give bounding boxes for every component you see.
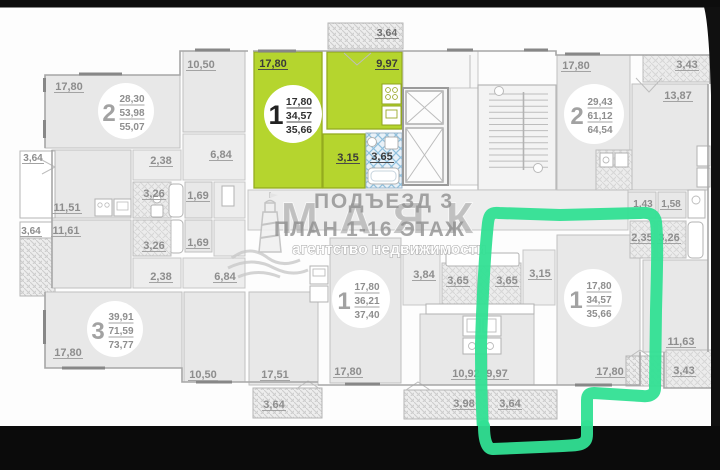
svg-text:10,50: 10,50 xyxy=(189,369,217,381)
svg-text:3,64: 3,64 xyxy=(377,27,398,39)
svg-text:9,97: 9,97 xyxy=(376,58,397,70)
svg-text:3,64: 3,64 xyxy=(23,153,43,164)
svg-text:ПЛАН 1-16 ЭТАЖ: ПЛАН 1-16 ЭТАЖ xyxy=(274,218,465,241)
svg-text:34,57: 34,57 xyxy=(586,295,611,306)
svg-text:34,57: 34,57 xyxy=(286,110,312,122)
svg-text:3,65: 3,65 xyxy=(371,151,392,163)
svg-text:11,61: 11,61 xyxy=(53,225,80,237)
svg-text:3,65: 3,65 xyxy=(496,275,517,287)
svg-text:3,64: 3,64 xyxy=(499,398,521,410)
svg-text:11,63: 11,63 xyxy=(668,336,695,348)
svg-text:17,51: 17,51 xyxy=(261,369,289,381)
svg-text:36,21: 36,21 xyxy=(354,296,379,307)
svg-text:37,40: 37,40 xyxy=(354,310,379,321)
svg-text:17,80: 17,80 xyxy=(562,60,590,72)
svg-text:3,15: 3,15 xyxy=(337,152,358,164)
svg-text:64,54: 64,54 xyxy=(587,125,612,136)
svg-text:29,43: 29,43 xyxy=(587,97,612,108)
svg-text:17,80: 17,80 xyxy=(596,366,624,378)
svg-text:17,80: 17,80 xyxy=(354,282,379,293)
svg-text:53,98: 53,98 xyxy=(119,108,144,119)
svg-text:1,69: 1,69 xyxy=(187,237,208,249)
svg-text:1,58: 1,58 xyxy=(661,199,681,210)
svg-text:17,80: 17,80 xyxy=(54,347,82,359)
svg-text:2,35: 2,35 xyxy=(631,232,652,244)
svg-text:агентство недвижимости: агентство недвижимости xyxy=(292,241,486,258)
svg-text:17,80: 17,80 xyxy=(259,58,287,70)
svg-text:3,84: 3,84 xyxy=(413,269,435,281)
svg-text:71,59: 71,59 xyxy=(108,326,133,337)
svg-text:3,98: 3,98 xyxy=(453,398,474,410)
svg-text:3,15: 3,15 xyxy=(529,268,550,280)
svg-text:13,87: 13,87 xyxy=(664,90,692,102)
svg-text:2,38: 2,38 xyxy=(150,155,171,167)
svg-text:35,66: 35,66 xyxy=(286,124,312,136)
svg-text:3,26: 3,26 xyxy=(143,240,164,252)
svg-text:1: 1 xyxy=(569,287,582,314)
svg-text:3,26: 3,26 xyxy=(143,188,164,200)
svg-text:9,97: 9,97 xyxy=(486,368,507,380)
svg-text:3,64: 3,64 xyxy=(263,399,285,411)
svg-text:3,43: 3,43 xyxy=(676,59,697,71)
svg-text:10,50: 10,50 xyxy=(187,59,215,71)
svg-text:55,07: 55,07 xyxy=(119,122,144,133)
svg-text:3,64: 3,64 xyxy=(21,226,41,237)
svg-text:2: 2 xyxy=(570,103,583,130)
svg-text:39,91: 39,91 xyxy=(108,312,133,323)
svg-text:6,84: 6,84 xyxy=(210,149,232,161)
svg-text:6,84: 6,84 xyxy=(214,271,236,283)
svg-text:1: 1 xyxy=(268,100,283,130)
svg-text:73,77: 73,77 xyxy=(108,340,133,351)
svg-text:17,80: 17,80 xyxy=(55,81,83,93)
svg-text:3,65: 3,65 xyxy=(447,275,468,287)
svg-text:1: 1 xyxy=(337,288,350,315)
svg-text:2,38: 2,38 xyxy=(150,271,171,283)
svg-text:17,80: 17,80 xyxy=(334,366,362,378)
svg-text:61,12: 61,12 xyxy=(587,111,612,122)
svg-text:17,80: 17,80 xyxy=(586,281,611,292)
svg-text:1,69: 1,69 xyxy=(187,190,208,202)
svg-text:35,66: 35,66 xyxy=(586,309,611,320)
svg-text:3: 3 xyxy=(91,318,104,345)
svg-text:28,30: 28,30 xyxy=(119,94,144,105)
svg-text:2: 2 xyxy=(102,100,115,127)
svg-text:17,80: 17,80 xyxy=(286,96,312,108)
svg-text:11,51: 11,51 xyxy=(54,202,81,214)
svg-text:3,43: 3,43 xyxy=(673,365,694,377)
